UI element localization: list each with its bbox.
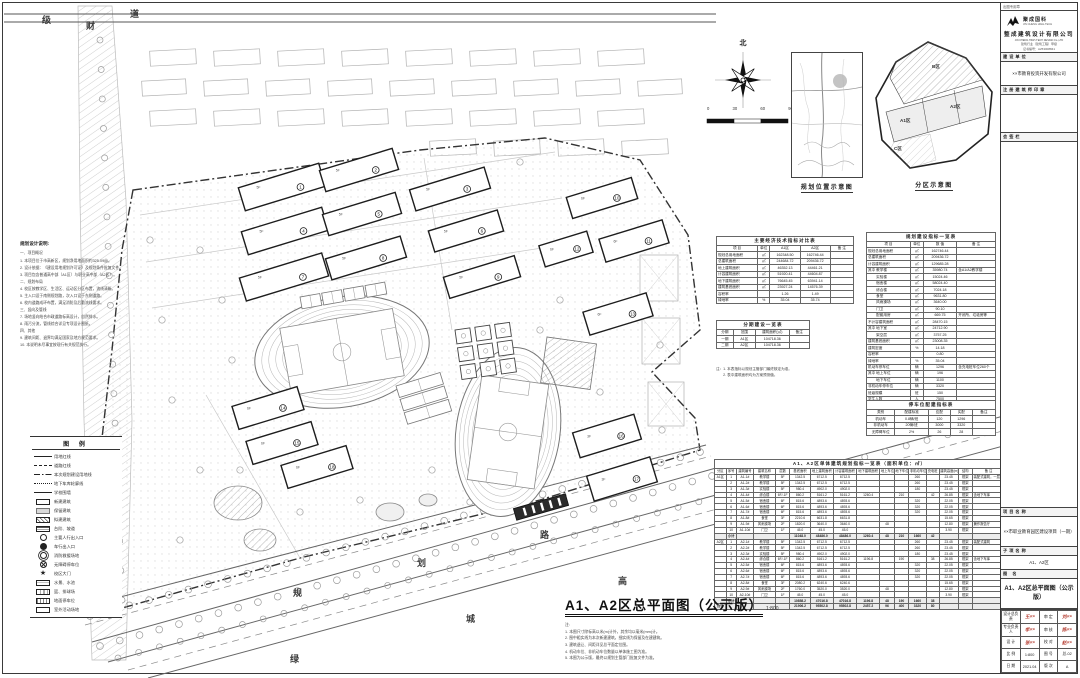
info-row: 比 例1:800图 号总-02: [1002, 649, 1077, 661]
table-note-line: 2. 表中建筑面积均为方案预测值。: [716, 372, 856, 378]
owner-label: 建设单位: [1001, 53, 1077, 62]
street-tree: [373, 566, 380, 573]
室外活动场地-symbol-icon: [32, 607, 54, 613]
context-building: [598, 109, 645, 126]
design-note-line: 4. 校区按教学区、生活区、运动区分区布置，流线清晰。: [20, 286, 140, 293]
table: 项 目单位A1区A2区备 注规划总用地面积㎡162348.50162746.44…: [716, 245, 854, 304]
地面停车位-symbol-icon: [32, 598, 54, 604]
street-tree: [630, 495, 637, 502]
table-header-cell: 地上车位: [880, 469, 895, 475]
context-building: [150, 109, 197, 126]
table-cell: [939, 604, 958, 610]
street-tree: [571, 532, 577, 538]
sheet-note-line: 1. 本图尺寸除标高以米(m)计外，其余均以毫米(mm)计。: [565, 629, 875, 636]
signature-role: 设 计: [1002, 637, 1021, 649]
legend-item: 保留建筑: [32, 506, 120, 515]
table-cell: 26: [928, 429, 950, 435]
company-mark-en: JIN CHENG HIGH-TECH: [1023, 23, 1052, 26]
street-tree: [235, 604, 242, 611]
context-building: [534, 109, 581, 126]
company-logo-icon: [1005, 14, 1021, 28]
signature-handwriting: 李××: [1024, 626, 1035, 633]
legend-item-label: 车行出入口: [54, 544, 75, 550]
design-note-line: 5. 主入口设于南侧规划路，次入口设于东侧道路。: [20, 293, 140, 300]
legend-item-label: 拟建建筑: [54, 517, 71, 523]
context-building: [266, 79, 311, 96]
building-number: 12: [575, 247, 580, 252]
legend-item-label: 台阶、坡道: [54, 526, 75, 532]
zoning-map-frame: B区A1区A2区C区: [870, 38, 998, 176]
table-row: 二期A2区104718.36: [717, 342, 810, 348]
design-note-line: 3. 项目包含普通高中部（A1区）与职业高中部（A2区）。: [20, 272, 140, 279]
context-building: [514, 79, 559, 96]
subproject-label: 子项名称: [1001, 547, 1077, 556]
signature-handwriting: 刘××: [1062, 613, 1073, 620]
street-tree: [412, 555, 419, 562]
drawing-sheet: 15F25F35F45F55F65F75F85F95F106F116F126F1…: [0, 0, 1080, 678]
legend-item-label: 地面停车位: [54, 598, 75, 604]
context-building: [406, 49, 453, 66]
context-building: [214, 49, 261, 66]
table-cell: 80: [926, 604, 939, 610]
zone-label: C区: [894, 146, 902, 152]
street-tree: [649, 489, 656, 496]
scale-bar: 0306090: [706, 106, 794, 130]
street-tree: [255, 599, 262, 606]
location-map: 规划位置示意图: [792, 52, 862, 193]
project-value: ××市职业教育园区建设项目（一期）: [1001, 517, 1077, 547]
table-cell: 28: [950, 429, 972, 435]
indicator-table-detail: 规划建设指标一览表项 目单位数 值备 注规划总用地面积㎡162746.44总建筑…: [866, 232, 996, 410]
building-floors: 5F: [259, 229, 263, 233]
context-building: [638, 79, 683, 96]
street-tree: [551, 538, 557, 544]
street-tree: [432, 549, 439, 556]
building-list-table: A1、A2区单体建筑规划指标一览表（面积单位：㎡）分区序号建筑编号建筑名称层数基…: [714, 459, 1005, 610]
signature-handwriting: 赵××: [1062, 639, 1073, 646]
building-floors: 3F: [602, 477, 606, 481]
table-title: 分期建设一览表: [716, 320, 810, 329]
building-floors: 5F: [426, 187, 430, 191]
design-note-line: 7. 场地竖向结合市政道路标高设计，自然排水。: [20, 314, 140, 321]
table-header-row: 分区序号建筑编号建筑名称层数基底面积地上建筑面积计容建筑面积地下建筑面积地上车位…: [715, 469, 1005, 475]
sports-court: [541, 337, 597, 390]
legend-item: 篮、排球场: [32, 587, 120, 596]
context-building: [390, 79, 435, 96]
building-floors: 5F: [444, 229, 448, 233]
table-notes: 注：1. 本表指标以规划主管部门最终核定为准。 2. 表中建筑面积均为方案预测值…: [716, 366, 856, 378]
无障碍停车位-symbol-icon: [32, 561, 54, 568]
company-name-cn: 整成建筑设计有限公司: [1003, 30, 1075, 38]
道路红线-symbol-icon: [32, 465, 54, 466]
design-note-line: 二、规划布局: [20, 279, 140, 286]
signature-name: 陈××: [1058, 624, 1077, 637]
building-floors: 6F: [550, 247, 554, 251]
拟建建筑-symbol-icon: [32, 517, 54, 523]
parking-table: 停车位配建指标表类别配建标准应配实配备注机动车0.8辆/班1201296非机动车…: [866, 400, 996, 436]
design-note-line: 10. 本说明未尽事宜按现行有关规范执行。: [20, 342, 140, 349]
info-row: 日 期2021.04版 次A: [1002, 661, 1077, 673]
table-header-cell: 地上建筑面积: [810, 469, 833, 475]
legend-item-label: 地下车库轮廓线: [54, 481, 83, 487]
zone-label: A1区: [900, 118, 910, 124]
design-notes: 规划设计说明: 一、项目概况1. 本项目位于市高新区，规划净用地面积约325.0…: [20, 240, 140, 349]
table-cell: A2区: [733, 342, 755, 348]
table-header-cell: 地下车位: [894, 469, 909, 475]
scale-tick: 60: [760, 106, 765, 111]
context-building: [452, 79, 497, 96]
building-floors: 5F: [339, 212, 343, 216]
street-tree: [531, 522, 538, 529]
info-cell: 日 期: [1002, 661, 1021, 673]
context-building: [342, 109, 389, 126]
sheet-title: A1、A2区总平面图（公示版）: [565, 598, 763, 617]
context-building: [470, 109, 517, 126]
building-number: 11: [646, 239, 651, 244]
legend-item-label: 水景、水池: [54, 580, 75, 586]
sheet-title-block: A1、A2区总平面图（公示版）1:800 注:1. 本图尺寸除标高以米(m)计外…: [565, 594, 875, 662]
street-tree: [903, 443, 909, 449]
compass-rose-icon: [714, 48, 772, 112]
context-building: [214, 109, 261, 126]
context-building: [150, 49, 197, 66]
design-note-line: 一、项目概况: [20, 250, 140, 257]
篮、排球场-symbol-icon: [32, 589, 54, 595]
table-title: 停车位配建指标表: [866, 400, 996, 409]
台阶、坡道-symbol-icon: [32, 526, 54, 532]
sheet-note-line: 4. 机动车位、非机动车位数量以单体施工图为准。: [565, 649, 875, 656]
signature-handwriting: 张××: [1024, 639, 1035, 646]
building-floors: 6F: [598, 312, 602, 316]
legend-item: 本次规划建设用地线: [32, 470, 120, 479]
street-tree: [452, 544, 459, 551]
学校围墙-symbol-icon: [32, 492, 54, 493]
building-floors: 5F: [459, 275, 463, 279]
building-floors: 5F: [256, 185, 260, 189]
signature-name: 王××: [1020, 611, 1039, 624]
用地红线-symbol-icon: [32, 456, 54, 457]
legend-item: 用地红线: [32, 452, 120, 461]
info-cell: 版 次: [1039, 661, 1058, 673]
legend-item-label: 学校围墙: [54, 490, 71, 496]
legend-item: 地下车库轮廓线: [32, 479, 120, 488]
legend-item-label: 新建建筑: [54, 499, 71, 505]
context-building: [204, 79, 249, 96]
table-cell: 96: [880, 604, 895, 610]
street-tree: [314, 582, 321, 589]
legend-item: 道路红线: [32, 461, 120, 470]
table-header-cell: 非机动车位: [909, 469, 926, 475]
zone-label: B区: [932, 64, 940, 70]
table-title: A1、A2区单体建筑规划指标一览表（面积单位：㎡）: [714, 459, 1005, 468]
info-cell: 2021.04: [1020, 661, 1039, 673]
building-floors: 5F: [258, 275, 262, 279]
legend-item: 拟建建筑: [32, 515, 120, 524]
zoning-map: B区A1区A2区C区 分区示意图: [870, 38, 998, 191]
project-label: 项目名称: [1001, 508, 1077, 517]
building-number: 17: [634, 477, 639, 482]
legend-item: 地面停车位: [32, 596, 120, 605]
table-cell: 400: [894, 604, 909, 610]
table-cell: 35.04: [770, 297, 800, 303]
street-tree: [883, 448, 889, 454]
table-cell: 104718.36: [756, 342, 789, 348]
legend-item: 学校围墙: [32, 488, 120, 497]
legend-item-label: 室外活动场地: [54, 607, 79, 613]
signature-name: 张××: [1020, 637, 1039, 649]
design-note-line: 1. 本项目位于市高新区，规划净用地面积约325.09亩。: [20, 258, 140, 265]
signature-role: 校 对: [1039, 637, 1058, 649]
车行出入口-symbol-icon: [32, 543, 54, 550]
building-number: 10: [615, 196, 620, 201]
table-cell: %: [758, 297, 770, 303]
location-map-drawing: [792, 53, 862, 177]
table-cell: 3320: [909, 604, 926, 610]
legend-item: 消防救援场地: [32, 551, 120, 560]
context-building: [470, 49, 517, 66]
table-row: 绿地率%35.0435.74: [717, 297, 854, 303]
company-name-en: JIN CHENG HIGH-TECH DESIGN Co.,LTD: [1007, 38, 1072, 42]
signature-handwriting: 陈××: [1062, 626, 1073, 633]
street-tree: [551, 516, 558, 523]
table-header-cell: 建筑高度(m): [939, 469, 958, 475]
building-number: 15: [295, 441, 300, 446]
signature-role: 设计总负责: [1002, 611, 1021, 624]
street-tree: [156, 626, 163, 633]
stamp-label: 注册建筑师印章: [1001, 86, 1077, 95]
building-floors: 3F: [587, 434, 591, 438]
sheet-note-line: 注:: [565, 622, 875, 629]
subproject-value: A1、A2区: [1001, 556, 1077, 570]
drawing-name-label: 图 名: [1001, 570, 1077, 579]
info-cell: 总-02: [1058, 649, 1077, 661]
design-note-line: 8. 雨污分流，管线综合详见专项设计图纸。: [20, 321, 140, 328]
table-cell: 无障碍车位: [867, 429, 895, 435]
location-map-frame: [791, 52, 863, 178]
street-tree: [610, 500, 617, 507]
building-floors: 5F: [342, 256, 346, 260]
table-cell: [830, 297, 853, 303]
north-compass: 北: [714, 38, 772, 116]
street-tree: [613, 521, 619, 527]
location-map-caption: 规划位置示意图: [801, 182, 854, 193]
legend-item: 车行出入口: [32, 542, 120, 551]
signature-grid: 设计总负责王××审 定刘××专业负责人李××审 核陈××设 计张××校 对赵××…: [1001, 609, 1077, 673]
zoning-map-drawing: [870, 38, 998, 176]
small-building-cluster: [455, 322, 516, 379]
street-tree: [472, 538, 479, 545]
水景、水池-symbol-icon: [32, 580, 54, 586]
pond: [214, 486, 262, 520]
sheet-title-notes: 注:1. 本图尺寸除标高以米(m)计外，其余均以毫米(mm)计。2. 图中粗实线…: [565, 622, 875, 662]
legend-item: 无障碍停车位: [32, 560, 120, 569]
company-cert-2: 证书编号：A253008841: [1003, 47, 1075, 52]
phasing-table: 分期建设一览表分期范围建筑面积(㎡)备注一期A1区104718.36二期A2区1…: [716, 320, 810, 349]
legend-item: 主要人行出入口: [32, 533, 120, 542]
scale-tick: 30: [733, 106, 738, 111]
context-building: [576, 79, 621, 96]
street-tree: [136, 649, 142, 655]
context-building: [598, 49, 645, 66]
本次规划建设用地线-symbol-icon: [32, 474, 54, 475]
legend: 图 例 用地红线道路红线本次规划建设用地线地下车库轮廓线学校围墙新建建筑保留建筑…: [30, 436, 122, 618]
design-note-line: 6. 校内道路成环布置，满足消防及后勤流线要求。: [20, 300, 140, 307]
signature-row: 专业负责人李××审 核陈××: [1002, 624, 1077, 637]
signature-role: 专业负责人: [1002, 624, 1021, 637]
signature-handwriting: 王××: [1024, 613, 1035, 620]
street-tree: [274, 593, 281, 600]
street-tree: [590, 506, 597, 513]
info-cell: 1:800: [1020, 649, 1039, 661]
scale-bar-icon: [706, 117, 790, 125]
pond: [419, 494, 437, 506]
context-building: [622, 139, 669, 156]
table-header-cell: 充电桩: [926, 469, 939, 475]
table-cell: 绿地率: [717, 297, 758, 303]
table-cell: 35.74: [800, 297, 830, 303]
signature-table: 设计总负责王××审 定刘××专业负责人李××审 核陈××设 计张××校 对赵××…: [1001, 610, 1077, 673]
table: 分区序号建筑编号建筑名称层数基底面积地上建筑面积计容建筑面积地下建筑面积地上车位…: [714, 468, 1005, 610]
signature-name: 刘××: [1058, 611, 1077, 624]
table-title: 规划建设指标一览表: [866, 232, 996, 241]
street-tree: [530, 543, 536, 549]
table-header-cell: 建筑编号: [736, 469, 753, 475]
stamp-area: [1001, 95, 1077, 133]
info-cell: A: [1058, 661, 1077, 673]
table-cell: [958, 604, 973, 610]
design-note-line: 四、其他: [20, 328, 140, 335]
street-tree: [215, 610, 222, 617]
street-tree: [195, 615, 202, 622]
company-mark: 聚成国科: [1023, 16, 1052, 23]
legend-item-label: 无障碍停车位: [54, 562, 79, 568]
legend-item-label: 消防救援场地: [54, 553, 79, 559]
building-floors: 6F: [261, 441, 265, 445]
indicator-table-main: 主要经济技术指标对比表项 目单位A1区A2区备 注规划总用地面积㎡162348.…: [716, 236, 854, 304]
legend-item: 水景、水池: [32, 578, 120, 587]
drawing-name-value: A1、A2区总平面图（公示版）: [1001, 579, 1077, 609]
legend-title: 图 例: [32, 439, 120, 450]
校区大门-symbol-icon: ★: [32, 570, 54, 577]
design-notes-title: 规划设计说明:: [20, 240, 140, 248]
legend-item-label: 校区大门: [54, 571, 71, 577]
street-tree: [136, 632, 143, 639]
context-building: [406, 109, 453, 126]
sheet-note-line: 2. 图中粗实线为本次新建建筑，细实线为保留及在建建筑。: [565, 635, 875, 642]
legend-body: 用地红线道路红线本次规划建设用地线地下车库轮廓线学校围墙新建建筑保留建筑拟建建筑…: [32, 452, 120, 614]
legend-item-label: 用地红线: [54, 454, 71, 460]
sheet-title-scale: 1:800: [766, 606, 779, 612]
street-tree: [353, 571, 360, 578]
street-tree: [294, 588, 301, 595]
table-header-cell: 地下建筑面积: [857, 469, 880, 475]
table: 分期范围建筑面积(㎡)备注一期A1区104718.36二期A2区104718.3…: [716, 329, 810, 349]
cosign-label: 会签栏: [1001, 133, 1077, 142]
building-number: 18: [330, 465, 335, 470]
street-tree: [669, 484, 676, 491]
context-building: [342, 49, 389, 66]
context-building: [278, 109, 325, 126]
design-note-line: 三、竖向及管线: [20, 307, 140, 314]
legend-item-label: 主要人行出入口: [54, 535, 83, 541]
cosign-area: [1001, 142, 1077, 508]
design-notes-body: 一、项目概况1. 本项目位于市高新区，规划净用地面积约325.09亩。2. 设计…: [20, 250, 140, 348]
design-note-line: 9. 建筑间距、退界均满足国家及地方规范要求。: [20, 335, 140, 342]
zone-label: A2区: [950, 104, 960, 110]
street-tree: [592, 527, 598, 533]
street-tree: [511, 527, 518, 534]
signature-role: 审 核: [1039, 624, 1058, 637]
context-building: [328, 79, 373, 96]
signature-row: 设计总负责王××审 定刘××: [1002, 611, 1077, 624]
legend-item-label: 道路红线: [54, 463, 71, 469]
street-tree: [491, 533, 498, 540]
table-cell: 二期: [717, 342, 734, 348]
company-block: 聚成国科 JIN CHENG HIGH-TECH 整成建筑设计有限公司 JIN …: [1001, 11, 1077, 53]
地下车库轮廓线-symbol-icon: [32, 483, 54, 484]
title-block: 出图专用章 聚成国科 JIN CHENG HIGH-TECH 整成建筑设计有限公…: [1000, 2, 1078, 674]
scale-bar-ticks: 0306090: [706, 106, 794, 111]
scale-tick: 0: [707, 106, 709, 111]
table-cell: [789, 342, 809, 348]
signature-role: 审 定: [1039, 611, 1058, 624]
signature-name: 李××: [1020, 624, 1039, 637]
info-cell: 比 例: [1002, 649, 1021, 661]
table-cell: [972, 429, 995, 435]
building-floors: 6F: [247, 406, 251, 410]
legend-item: ★校区大门: [32, 569, 120, 578]
north-label: 北: [714, 38, 772, 48]
building-number: 16: [619, 434, 624, 439]
pond: [244, 529, 276, 551]
building-floors: 5F: [336, 168, 340, 172]
legend-item: 新建建筑: [32, 497, 120, 506]
legend-item-label: 篮、排球场: [54, 589, 75, 595]
保留建筑-symbol-icon: [32, 508, 54, 514]
context-building: [278, 49, 325, 66]
signature-name: 赵××: [1058, 637, 1077, 649]
building-number: 13: [630, 312, 635, 317]
street-tree: [570, 511, 577, 518]
street-tree: [924, 437, 930, 443]
table: 类别配建标准应配实配备注机动车0.8辆/班1201296非机动车20辆/班300…: [866, 409, 996, 436]
info-cell: 图 号: [1039, 649, 1058, 661]
消防救援场地-symbol-icon: [32, 552, 54, 559]
zoning-map-caption: 分区示意图: [915, 180, 953, 191]
legend-item: 室外活动场地: [32, 605, 120, 614]
building-number: 14: [281, 406, 286, 411]
pond: [376, 503, 404, 521]
主要人行出入口-symbol-icon: [32, 534, 54, 541]
street-tree: [393, 560, 400, 567]
signature-row: 设 计张××校 对赵××: [1002, 637, 1077, 649]
legend-item-label: 本次规划建设用地线: [54, 472, 92, 478]
sheet-note-line: 5. 本图为公示版，最终以规划主管部门批复文件为准。: [565, 655, 875, 662]
sheet-note-line: 3. 建筑退让、间距详见总平面定位图。: [565, 642, 875, 649]
street-tree: [334, 577, 341, 584]
legend-item: 台阶、坡道: [32, 524, 120, 533]
titleblock-top-note: 出图专用章: [1001, 3, 1077, 11]
table: 项 目单位数 值备 注规划总用地面积㎡162746.44总建筑面积㎡209436…: [866, 241, 996, 410]
design-note-line: 2. 设计依据：《建设用地规划许可证》及规划条件批复文件。: [20, 265, 140, 272]
street-tree: [689, 478, 696, 485]
table-row: 无障碍车位2%2628: [867, 429, 996, 435]
context-building: [142, 79, 187, 96]
owner-value: ××市教育投资开发有限公司: [1001, 62, 1077, 86]
street-tree: [176, 621, 183, 628]
building-floors: 6F: [581, 196, 585, 200]
table-title: 主要经济技术指标对比表: [716, 236, 854, 245]
